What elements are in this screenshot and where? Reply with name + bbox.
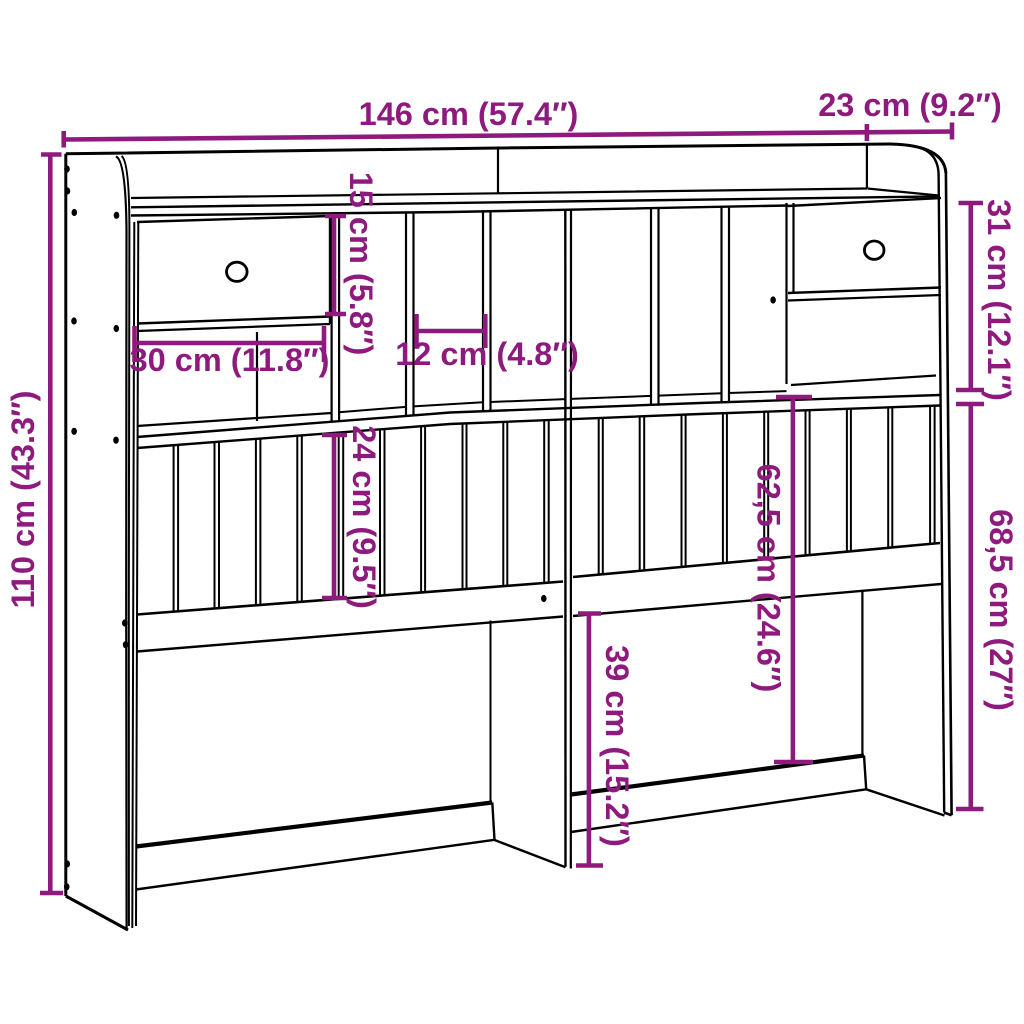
svg-text:110 cm (43.3″): 110 cm (43.3″) — [5, 391, 41, 609]
svg-text:23 cm (9.2″): 23 cm (9.2″) — [818, 87, 1002, 123]
svg-text:24 cm (9.5″): 24 cm (9.5″) — [346, 425, 382, 609]
svg-text:62,5 cm (24.6″): 62,5 cm (24.6″) — [751, 464, 787, 693]
svg-text:146 cm (57.4″): 146 cm (57.4″) — [359, 96, 579, 132]
svg-text:68,5 cm (27″): 68,5 cm (27″) — [983, 509, 1019, 711]
svg-text:31 cm (12.1″): 31 cm (12.1″) — [981, 199, 1017, 401]
svg-text:15 cm (5.8″): 15 cm (5.8″) — [343, 172, 379, 356]
svg-text:12 cm (4.8″): 12 cm (4.8″) — [395, 336, 579, 372]
svg-text:39 cm (15.2″): 39 cm (15.2″) — [599, 645, 635, 847]
svg-text:30 cm (11.8″): 30 cm (11.8″) — [130, 342, 330, 378]
